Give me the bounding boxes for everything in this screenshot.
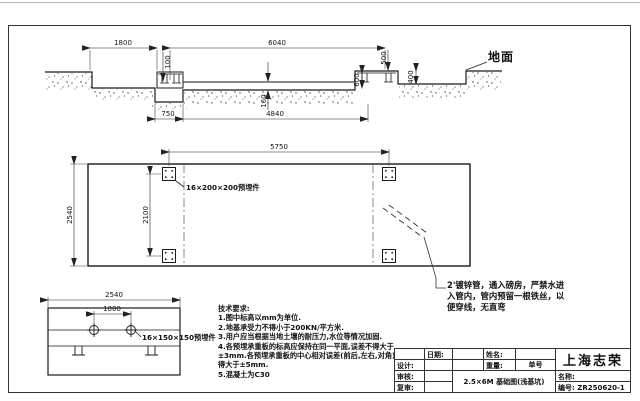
tech-note-line: 3.用户应当根据当地土壤的耐压力,水位等情况加固. bbox=[218, 332, 396, 341]
tb-date-label: 日期: bbox=[425, 349, 453, 360]
tech-note-line: 5.混凝土为C30 bbox=[218, 370, 396, 379]
dim-block-height: 600 bbox=[353, 73, 361, 86]
title-block: 日期: 姓名: 上海志荣 设计: 重量: 单号 审核: 2.5×6M 基础图(浅… bbox=[394, 348, 631, 393]
dim-sump-width: 750 bbox=[161, 110, 174, 118]
tech-note-line: ±3mm.各预埋承重板的中心相对误差(前后,左右,对角)不 bbox=[218, 351, 396, 360]
tb-name-value bbox=[516, 349, 556, 360]
soil-hatching bbox=[45, 72, 501, 111]
tech-note-line: 2.地基承受力不得小于200KN/平方米. bbox=[218, 323, 396, 332]
dim-ledge-depth: 400 bbox=[407, 70, 415, 83]
pipe-note-line: 入管内，管内预留一根铁丝，以 bbox=[447, 291, 579, 302]
tb-product-name-label: 名称: bbox=[556, 371, 630, 382]
right-bearing-block bbox=[357, 73, 396, 82]
dim-slab-thickness: 160 bbox=[260, 94, 268, 107]
tb-drawing-number: 编号: ZR250620-1 bbox=[556, 382, 630, 392]
conduit-lines bbox=[383, 205, 446, 288]
plan-extension-lines bbox=[70, 149, 389, 266]
tb-number-label: 编号: bbox=[558, 384, 575, 392]
pipe-note: 2'镀锌管，通入磅房，严禁水进 入管内，管内预留一根铁丝，以 便穿线，无直弯 bbox=[447, 280, 579, 312]
pipe-note-line: 便穿线，无直弯 bbox=[447, 302, 579, 313]
engineering-drawing-sheet: 1800 6040 750 4840 500 100 160 400 600 bbox=[0, 0, 640, 401]
detail-view: 2540 1000 16×150×150预埋件 bbox=[48, 291, 216, 375]
tech-note-line: 技术要求: bbox=[218, 304, 396, 313]
plan-dimension-lines bbox=[74, 152, 389, 266]
tb-designer-label: 设计: bbox=[395, 360, 425, 371]
platform-centerlines bbox=[184, 164, 373, 266]
tb-empty bbox=[395, 349, 425, 360]
tb-company: 上海志荣 bbox=[556, 349, 630, 371]
section-view: 1800 6040 750 4840 500 100 160 400 600 bbox=[45, 39, 502, 122]
ground-label: 地面 bbox=[488, 48, 514, 65]
dim-clear-span: 4840 bbox=[266, 110, 284, 118]
section-extension-lines bbox=[90, 50, 385, 122]
tb-date-value bbox=[453, 349, 484, 360]
tb-reviewer-value bbox=[425, 382, 453, 392]
dim-detail-plate-spacing: 1000 bbox=[103, 305, 121, 313]
dim-plate-span: 5750 bbox=[270, 143, 288, 151]
dim-detail-width: 2540 bbox=[105, 291, 123, 299]
dim-pit-length: 6040 bbox=[268, 39, 286, 47]
pipe-note-line: 2'镀锌管，通入磅房，严禁水进 bbox=[447, 280, 579, 291]
tech-note-line: 得大于±5mm. bbox=[218, 360, 396, 369]
dim-plate-spacing: 2100 bbox=[142, 206, 150, 224]
tb-weight-label: 重量: bbox=[484, 360, 516, 371]
dim-approach: 1800 bbox=[114, 39, 132, 47]
dim-plan-width: 2540 bbox=[66, 206, 74, 224]
tb-drawing-title: 2.5×6M 基础图(浅基坑) bbox=[453, 371, 556, 392]
plan-plate-label: 16×200×200预埋件 bbox=[186, 183, 260, 192]
tech-note-line: 4.各预埋承重板的标高应保持在同一平面,误差不得大于 bbox=[218, 342, 396, 351]
tb-reviewer-label: 复审: bbox=[395, 382, 425, 392]
detail-plate-label: 16×150×150预埋件 bbox=[142, 333, 216, 342]
dim-end-height: 500 bbox=[380, 51, 388, 64]
tb-name-label: 姓名: bbox=[484, 349, 516, 360]
dim-step: 100 bbox=[164, 55, 172, 68]
tb-checker-value bbox=[425, 371, 453, 382]
tb-order-label: 单号 bbox=[516, 360, 556, 371]
plan-view: 5750 2540 2100 16×200×200预埋件 bbox=[66, 143, 470, 288]
embedded-plates bbox=[163, 168, 396, 263]
tb-number-value: ZR250620-1 bbox=[577, 384, 624, 392]
tb-empty bbox=[453, 360, 484, 371]
technical-requirements: 技术要求: 1.图中标高以mm为单位. 2.地基承受力不得小于200KN/平方米… bbox=[218, 304, 396, 379]
tb-designer-value bbox=[425, 360, 453, 371]
tb-checker-label: 审核: bbox=[395, 371, 425, 382]
tech-note-line: 1.图中标高以mm为单位. bbox=[218, 313, 396, 322]
